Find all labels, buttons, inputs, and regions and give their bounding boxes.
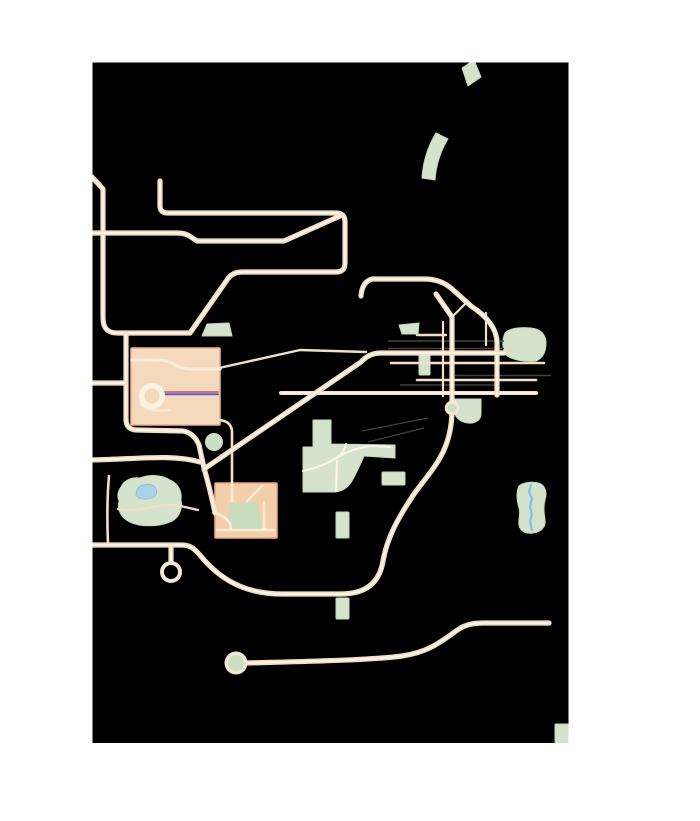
- park-small-rect-south: [336, 598, 349, 619]
- map-canvas[interactable]: [0, 0, 700, 821]
- central-park-path-south: [336, 461, 337, 491]
- page-background: [0, 0, 700, 821]
- park-trapezoid-northwest: [202, 323, 232, 336]
- ring-green-south-hole: [228, 655, 244, 671]
- ring-green-junction-hole: [448, 404, 457, 413]
- park-small-quad-junction: [399, 323, 419, 334]
- park-small-rect-east: [382, 472, 405, 485]
- green-disc-x214: [205, 433, 223, 451]
- ring-dark-x171-hole: [164, 565, 178, 579]
- lake-west-park: [136, 485, 157, 499]
- court-green-plaza: [228, 502, 263, 529]
- map-layers: [90, 60, 571, 744]
- park-corner-southeast: [555, 724, 571, 744]
- stadium-ring-hole: [145, 389, 160, 404]
- park-blob-east: [503, 328, 546, 362]
- park-west-with-lake: [118, 476, 181, 526]
- park-strip-below-central: [336, 512, 349, 538]
